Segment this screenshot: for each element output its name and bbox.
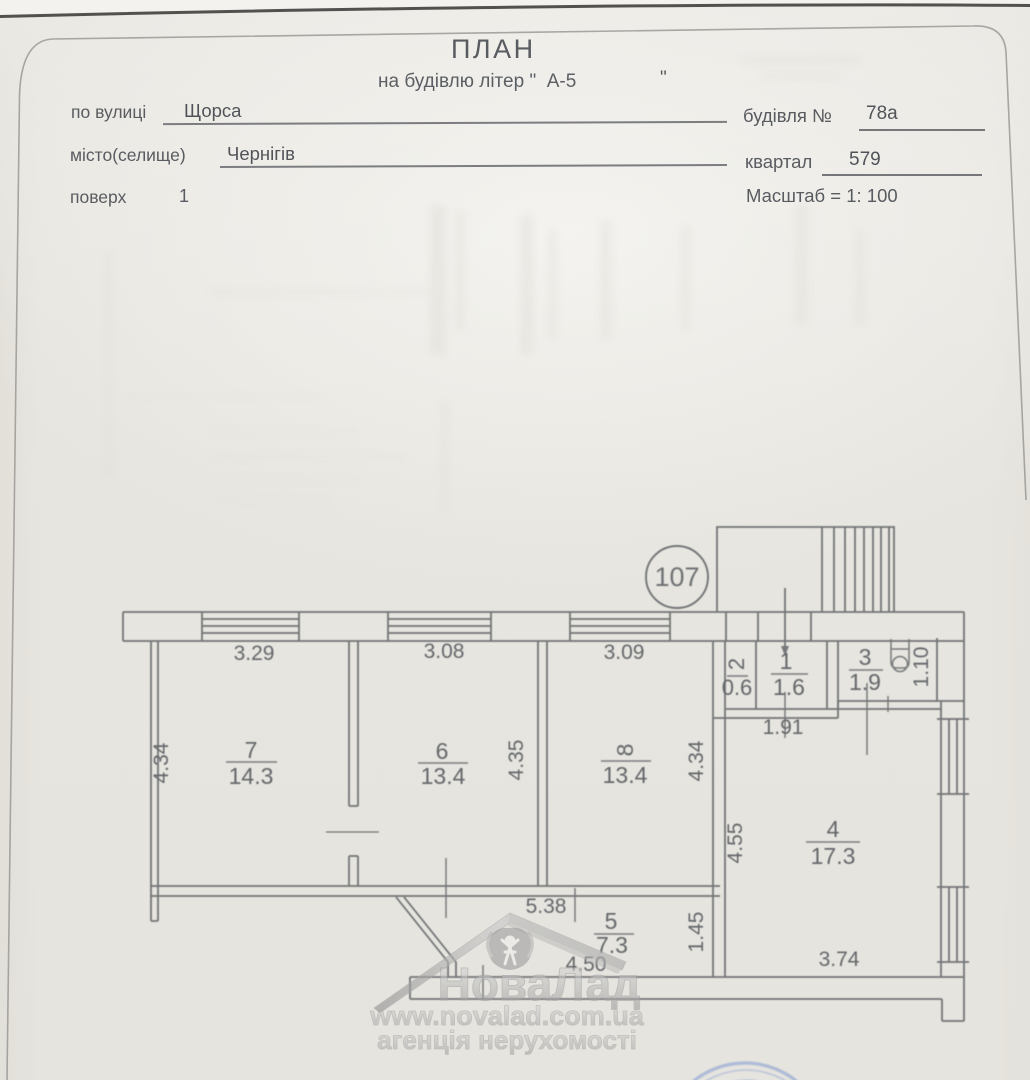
svg-text:агенція нерухомості: агенція нерухомості — [377, 1025, 637, 1055]
